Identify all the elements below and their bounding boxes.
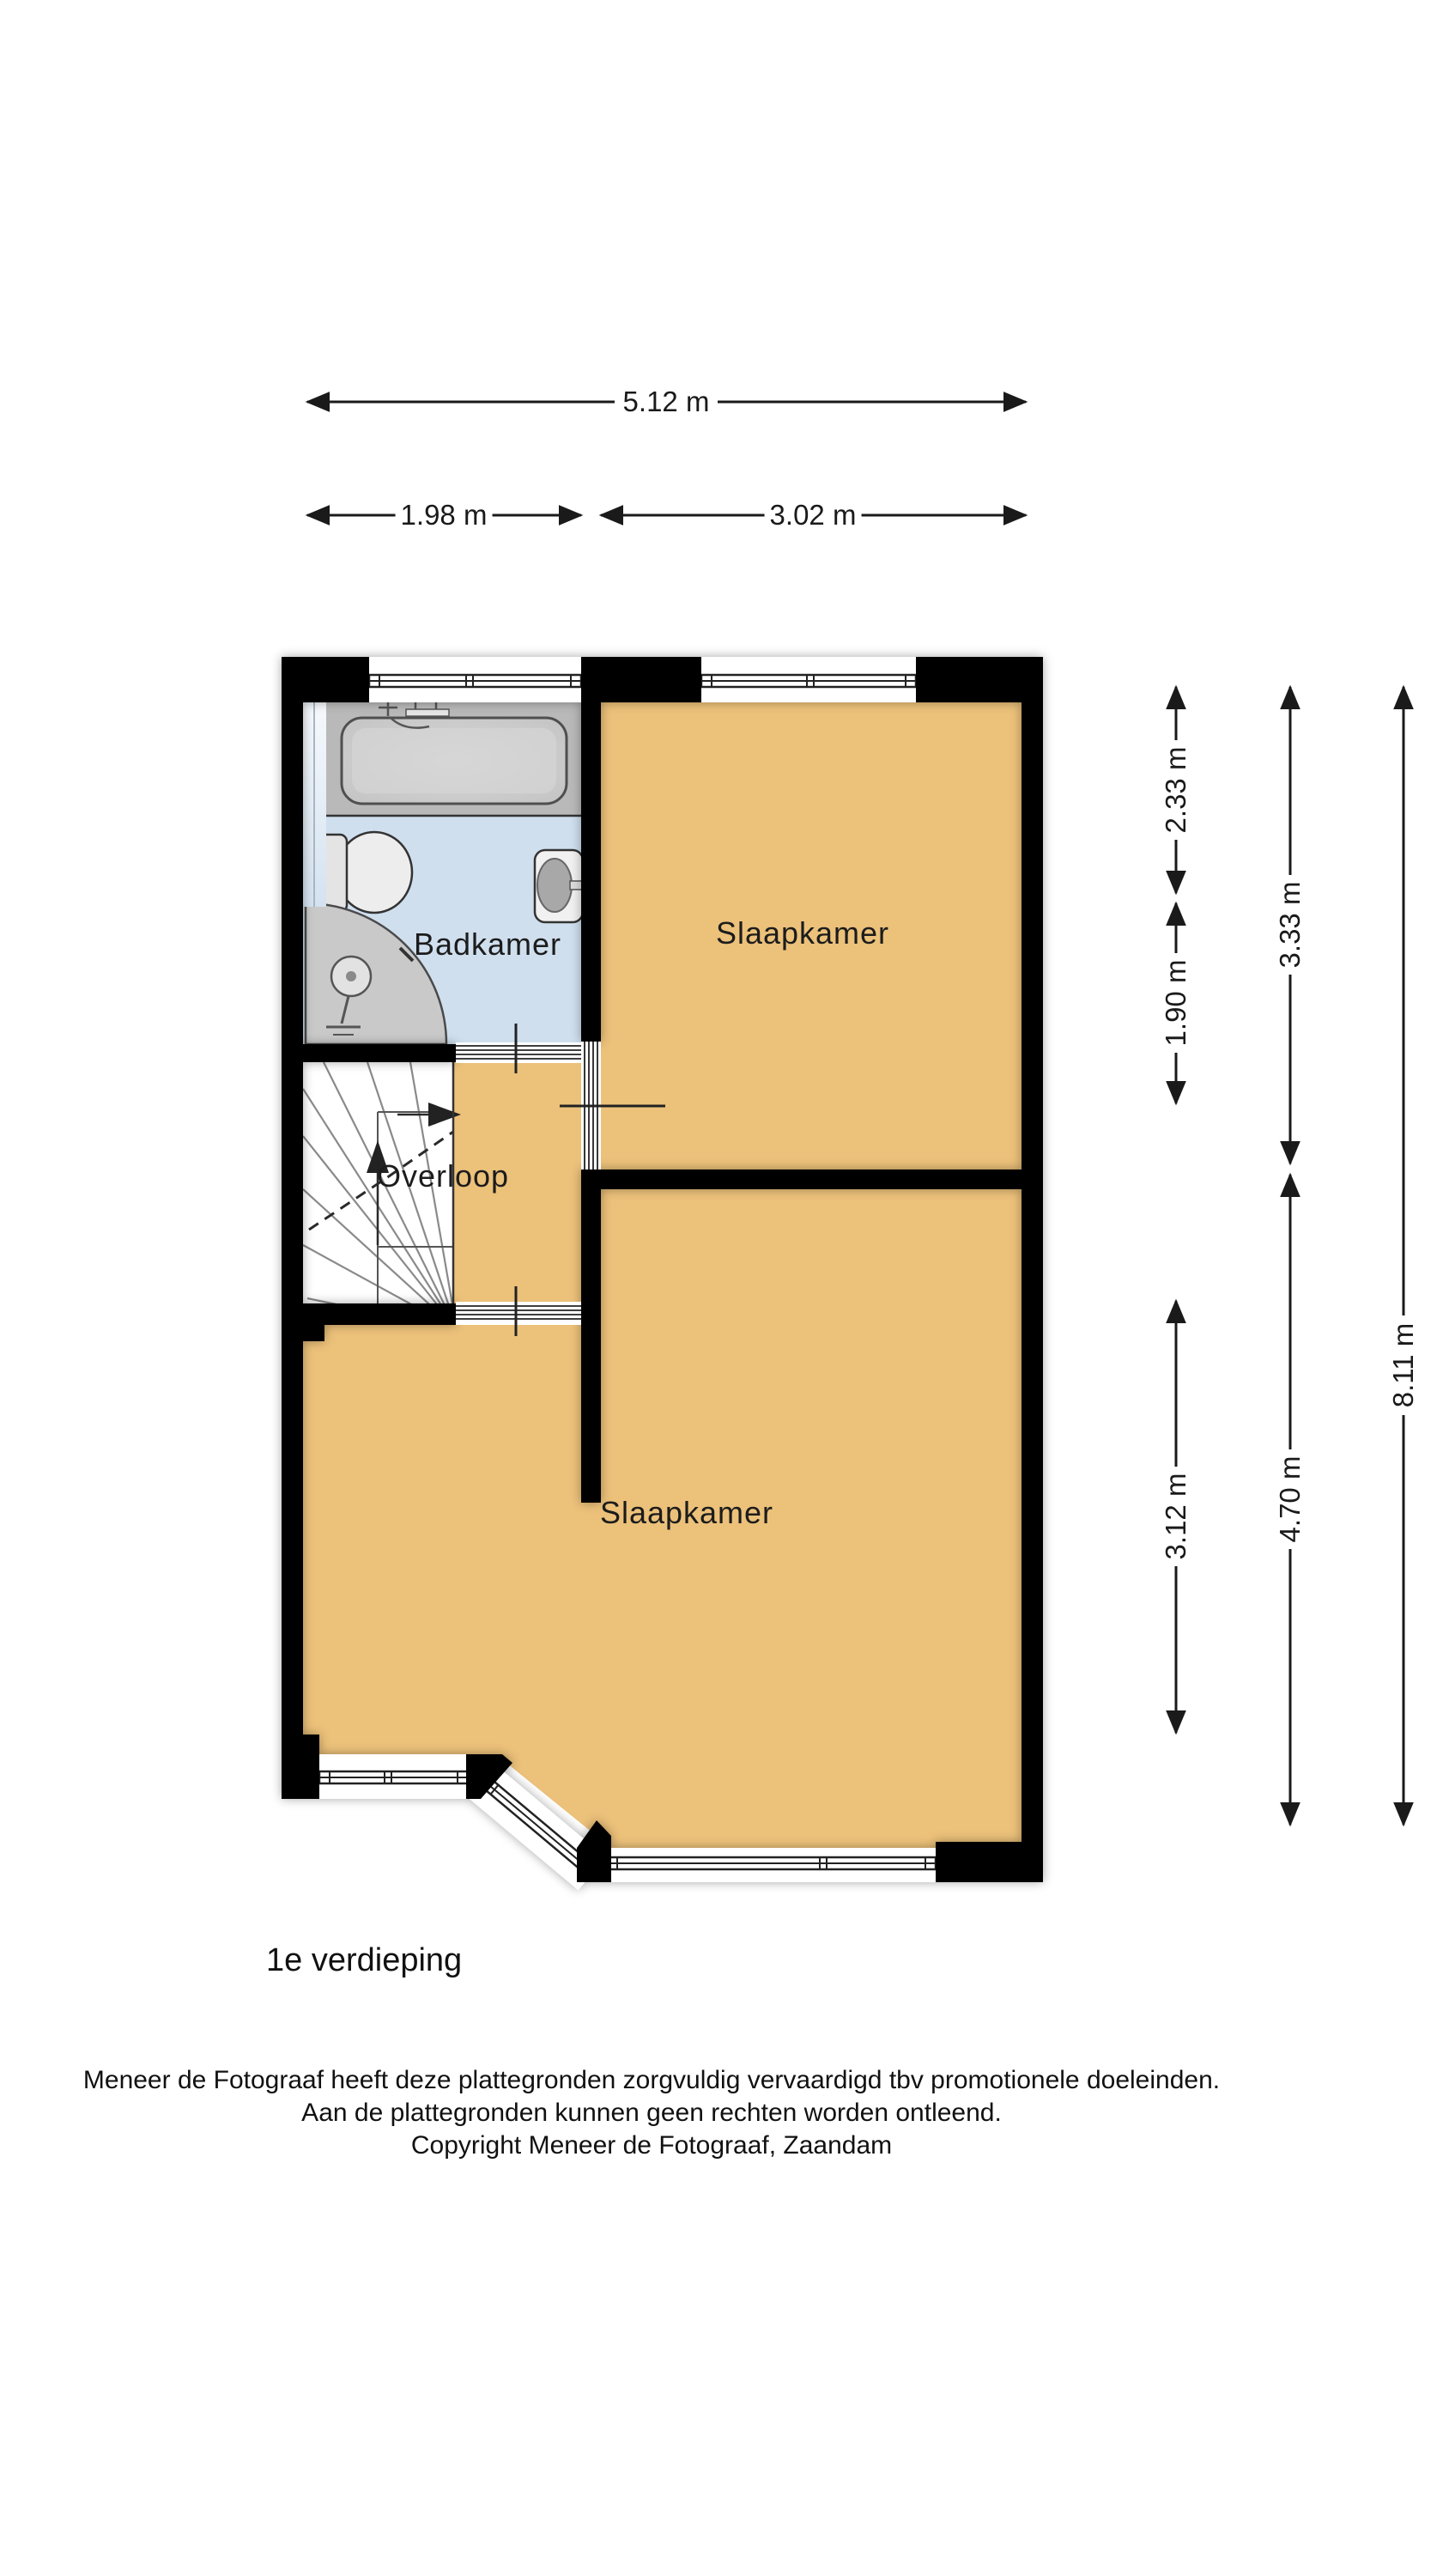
dim-right-col2-top: 3.33 m bbox=[1274, 877, 1307, 974]
staircase bbox=[303, 1062, 461, 1329]
room-label-landing: Overloop bbox=[377, 1158, 509, 1194]
footer-disclaimer-line1: Meneer de Fotograaf heeft deze plattegro… bbox=[83, 2066, 1220, 2095]
sink-icon bbox=[535, 850, 583, 922]
dim-right-col1-bottom: 3.12 m bbox=[1160, 1468, 1192, 1565]
footer-copyright: Copyright Meneer de Fotograaf, Zaandam bbox=[411, 2131, 892, 2160]
footer-disclaimer-line2: Aan de plattegronden kunnen geen rechten… bbox=[301, 2099, 1002, 2128]
floorplan-drawing bbox=[0, 0, 1449, 2576]
dim-right-col1-top: 2.33 m bbox=[1160, 742, 1192, 839]
dim-right-col1-mid: 1.90 m bbox=[1160, 955, 1192, 1052]
dim-top-left: 1.98 m bbox=[396, 499, 493, 532]
dim-top-right: 3.02 m bbox=[765, 499, 862, 532]
dim-right-col2-bottom: 4.70 m bbox=[1274, 1451, 1307, 1548]
dim-right-col3-total: 8.11 m bbox=[1387, 1318, 1420, 1413]
room-label-bedroom-bottom: Slaapkamer bbox=[600, 1495, 773, 1531]
page-title: 1e verdieping bbox=[266, 1942, 462, 1979]
room-label-bedroom-top: Slaapkamer bbox=[716, 915, 889, 951]
dim-top-total: 5.12 m bbox=[618, 386, 715, 418]
room-label-bathroom: Badkamer bbox=[414, 927, 561, 963]
floorplan-page: 5.12 m 1.98 m 3.02 m 2.33 m 1.90 m 3.12 … bbox=[0, 0, 1449, 2576]
bathtub-inner bbox=[352, 728, 556, 793]
